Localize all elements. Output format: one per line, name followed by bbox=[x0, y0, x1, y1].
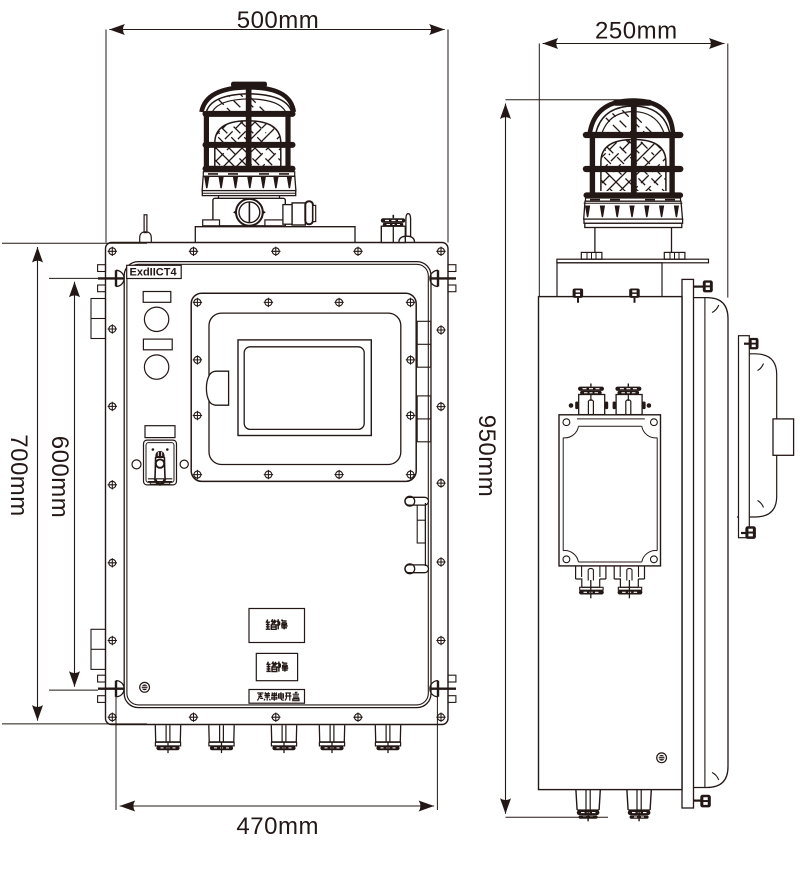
svg-text:470mm: 470mm bbox=[236, 813, 319, 840]
svg-text:950mm: 950mm bbox=[473, 415, 500, 498]
svg-text:600mm: 600mm bbox=[46, 436, 73, 519]
svg-text:250mm: 250mm bbox=[595, 17, 678, 44]
svg-text:700mm: 700mm bbox=[5, 434, 32, 517]
svg-text:500mm: 500mm bbox=[237, 7, 320, 34]
svg-text:ExdIICT4: ExdIICT4 bbox=[130, 267, 178, 279]
